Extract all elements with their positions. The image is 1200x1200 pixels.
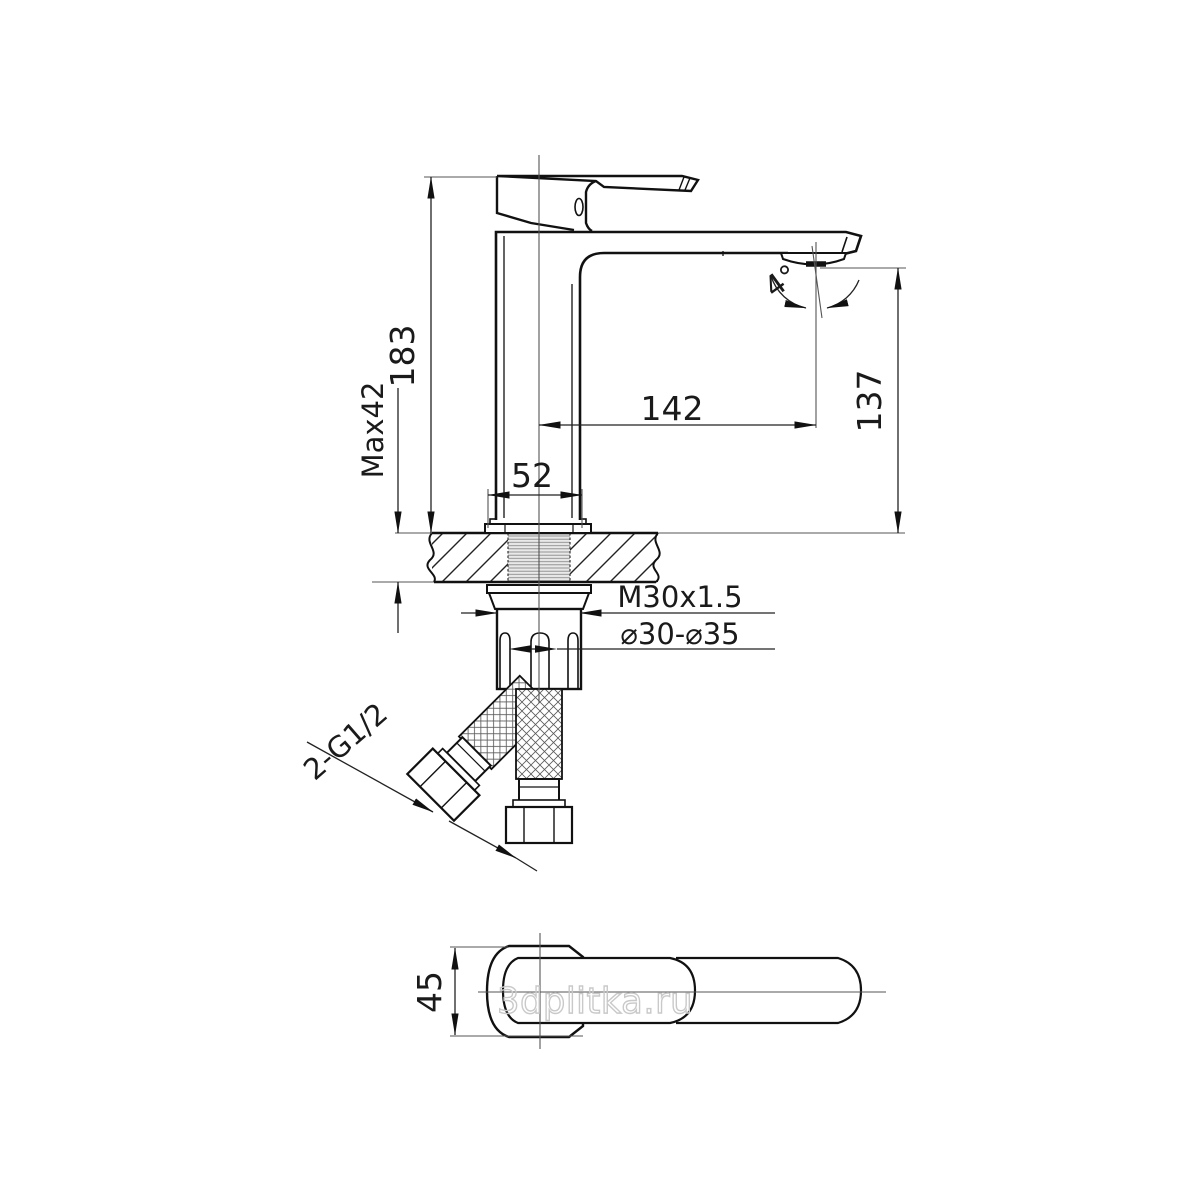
hose-hex-nut	[506, 807, 572, 843]
right-break-line	[653, 533, 659, 582]
watermark-text: 3dplitka.ru	[497, 981, 693, 1022]
supply-hose-right	[506, 689, 572, 843]
angle-arc-right	[827, 280, 859, 308]
technical-drawing-page: 183 Max42 142 137 52 4° M30x1.5 ⌀30-⌀35 …	[0, 0, 1200, 1200]
dim-hose-thread-label: 2-G1/2	[297, 696, 394, 787]
handle-hub	[497, 176, 574, 230]
dim-base-width-label: 52	[511, 456, 553, 495]
dim-hole-range-label: ⌀30-⌀35	[620, 617, 739, 651]
left-break-line	[427, 533, 434, 582]
faucet-technical-drawing: 183 Max42 142 137 52 4° M30x1.5 ⌀30-⌀35 …	[0, 0, 1200, 1200]
dim-thread-label: M30x1.5	[617, 580, 742, 614]
cartridge-neck	[586, 181, 596, 231]
dim-deck-thickness-label: Max42	[356, 382, 390, 479]
dim-body-width-label: 45	[410, 971, 449, 1013]
dim-spout-reach-label: 142	[641, 389, 704, 428]
dim-outlet-height-label: 137	[850, 370, 889, 433]
base-flange	[485, 519, 591, 533]
dim-total-height-label: 183	[383, 325, 422, 388]
front-view: 183 Max42 142 137 52 4° M30x1.5 ⌀30-⌀35 …	[297, 155, 906, 871]
dim-outlet-angle-label: 4°	[758, 257, 805, 304]
lever-bar-top-view	[676, 958, 861, 1023]
lever-handle	[497, 176, 698, 231]
